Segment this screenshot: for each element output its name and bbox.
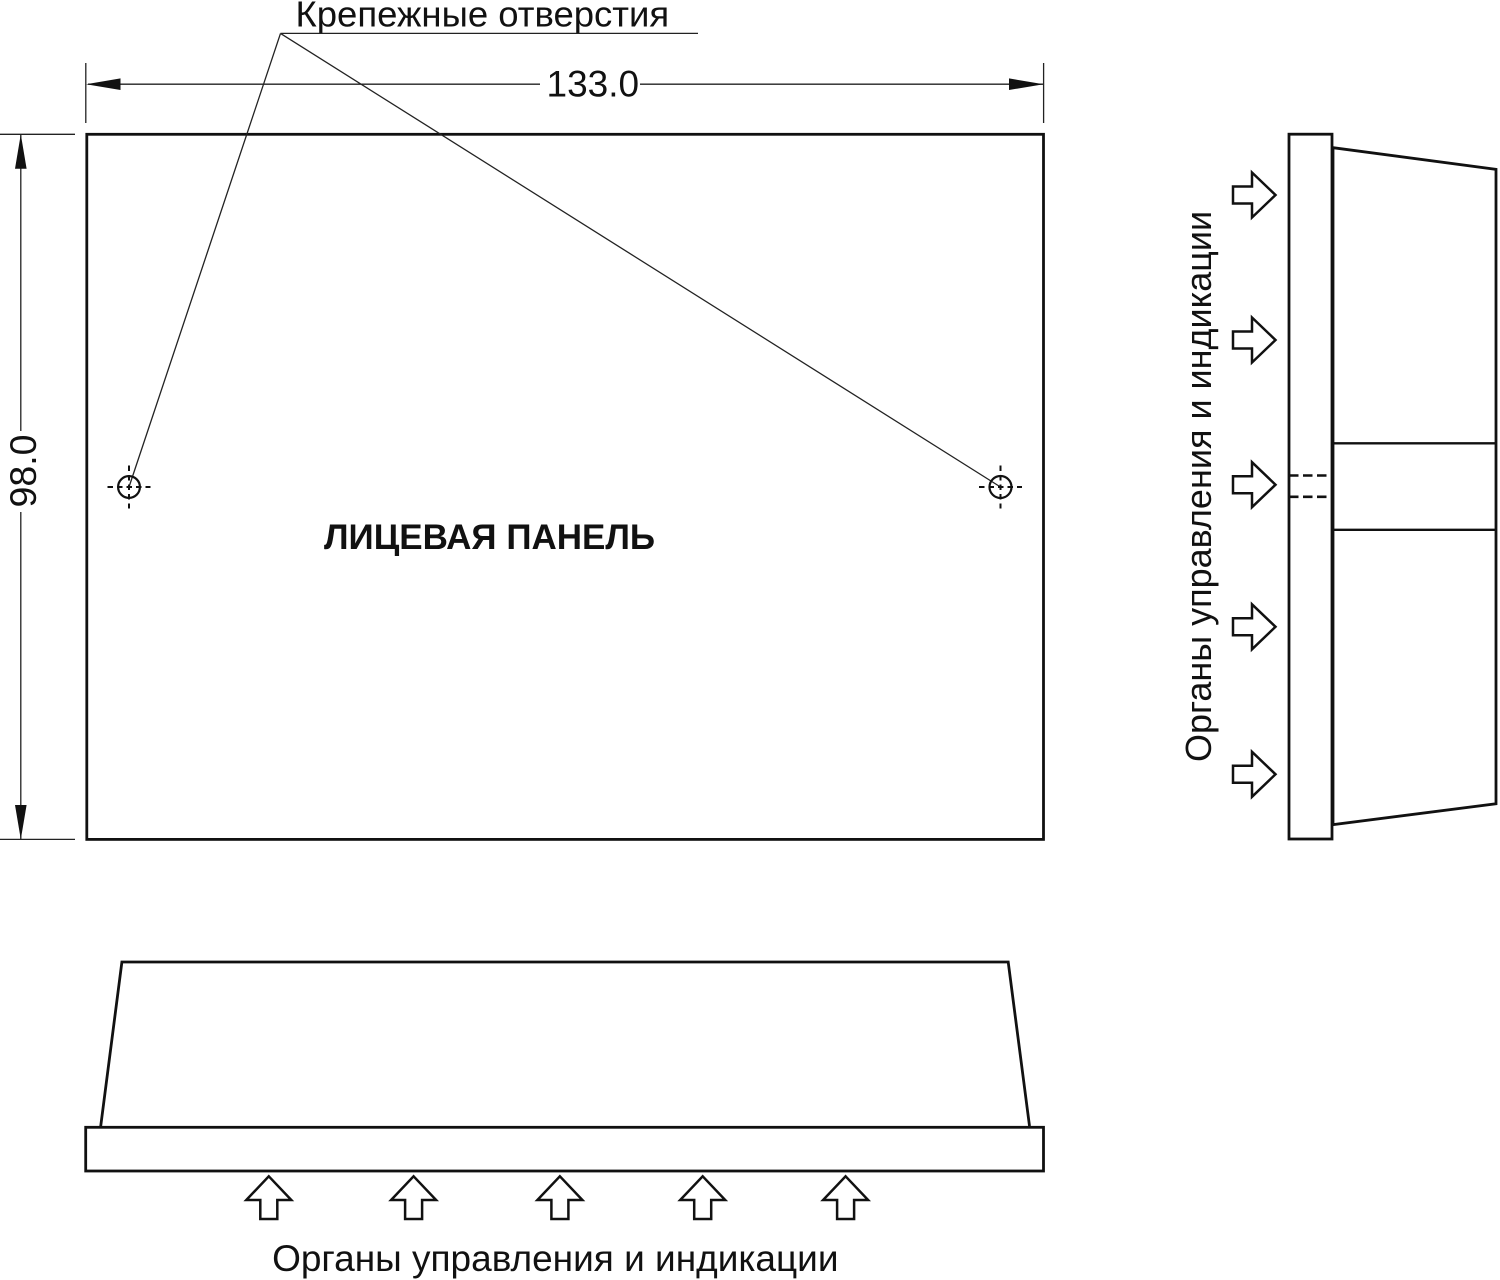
svg-text:Органы управления и индикации: Органы управления и индикации bbox=[1178, 211, 1219, 762]
svg-text:98.0: 98.0 bbox=[2, 435, 44, 508]
svg-text:Органы управления и индикации: Органы управления и индикации bbox=[272, 1238, 838, 1279]
svg-text:ЛИЦЕВАЯ ПАНЕЛЬ: ЛИЦЕВАЯ ПАНЕЛЬ bbox=[324, 518, 655, 557]
svg-text:133.0: 133.0 bbox=[547, 63, 640, 104]
svg-text:Крепежные отверстия: Крепежные отверстия bbox=[296, 0, 670, 35]
